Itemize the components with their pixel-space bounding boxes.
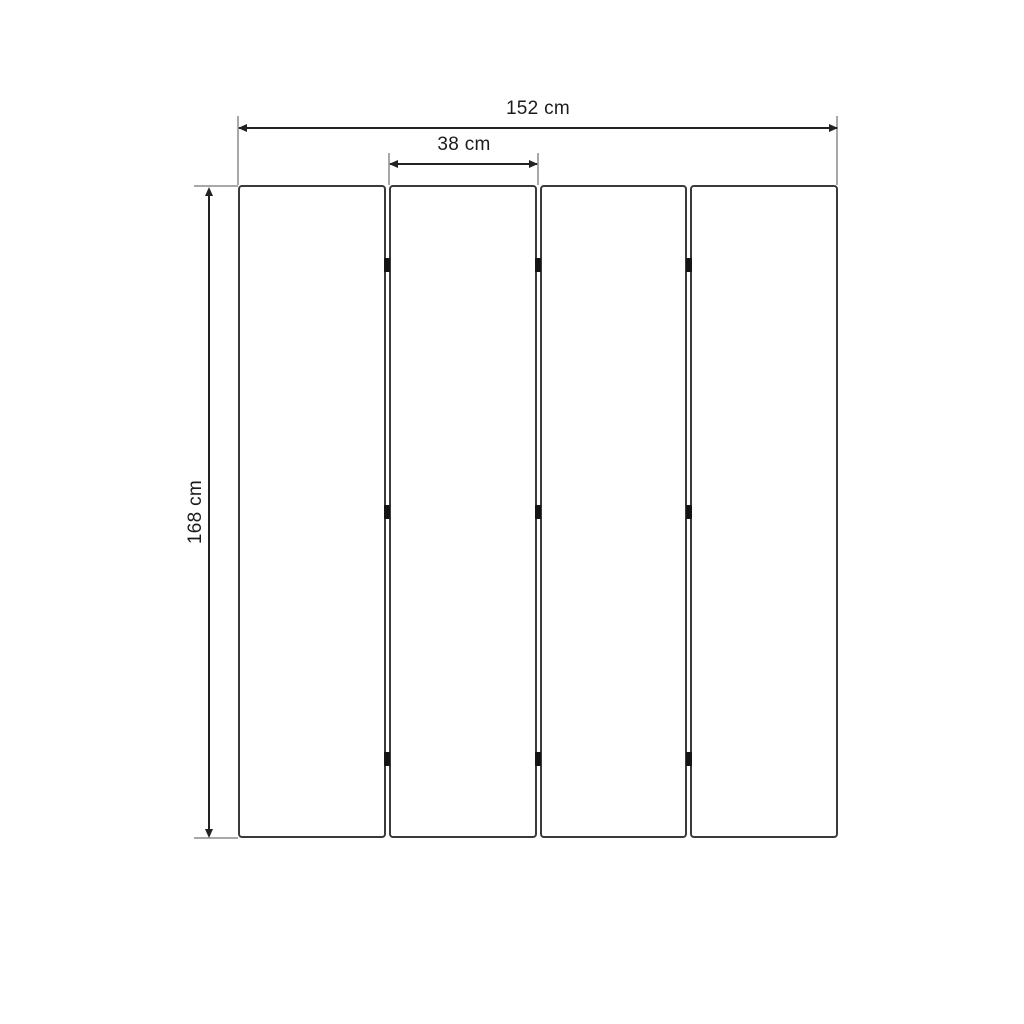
arrowhead-up-icon [205, 187, 213, 196]
extension-line-height-bottom [194, 837, 238, 839]
folding-screen [238, 185, 838, 838]
hinge-gap1-top [384, 258, 390, 272]
panel-3 [540, 185, 688, 838]
arrowhead-down-icon [205, 829, 213, 838]
hinge-gap1-middle [384, 505, 390, 519]
dimension-diagram: 152 cm 38 cm 168 cm [0, 0, 1024, 1024]
extension-line-panel-width-left [388, 153, 390, 185]
arrowhead-left-icon [389, 160, 398, 168]
panel-4 [690, 185, 838, 838]
hinge-gap3-middle [686, 505, 692, 519]
arrowhead-left-icon [238, 124, 247, 132]
dimension-line-height [208, 190, 210, 836]
hinge-gap3-bottom [686, 752, 692, 766]
panel-2 [389, 185, 537, 838]
hinge-gap2-middle [535, 505, 541, 519]
hinge-gap2-bottom [535, 752, 541, 766]
extension-line-height-top [194, 185, 238, 187]
hinge-gap3-top [686, 258, 692, 272]
arrowhead-right-icon [829, 124, 838, 132]
panel-1 [238, 185, 386, 838]
dimension-line-total-width [239, 127, 837, 129]
arrowhead-right-icon [529, 160, 538, 168]
extension-line-panel-width-right [537, 153, 539, 185]
dimension-line-panel-width [390, 163, 537, 165]
height-label: 168 cm [185, 472, 207, 552]
hinge-gap2-top [535, 258, 541, 272]
panel-width-label: 38 cm [394, 134, 534, 156]
hinge-gap1-bottom [384, 752, 390, 766]
total-width-label: 152 cm [468, 98, 608, 120]
